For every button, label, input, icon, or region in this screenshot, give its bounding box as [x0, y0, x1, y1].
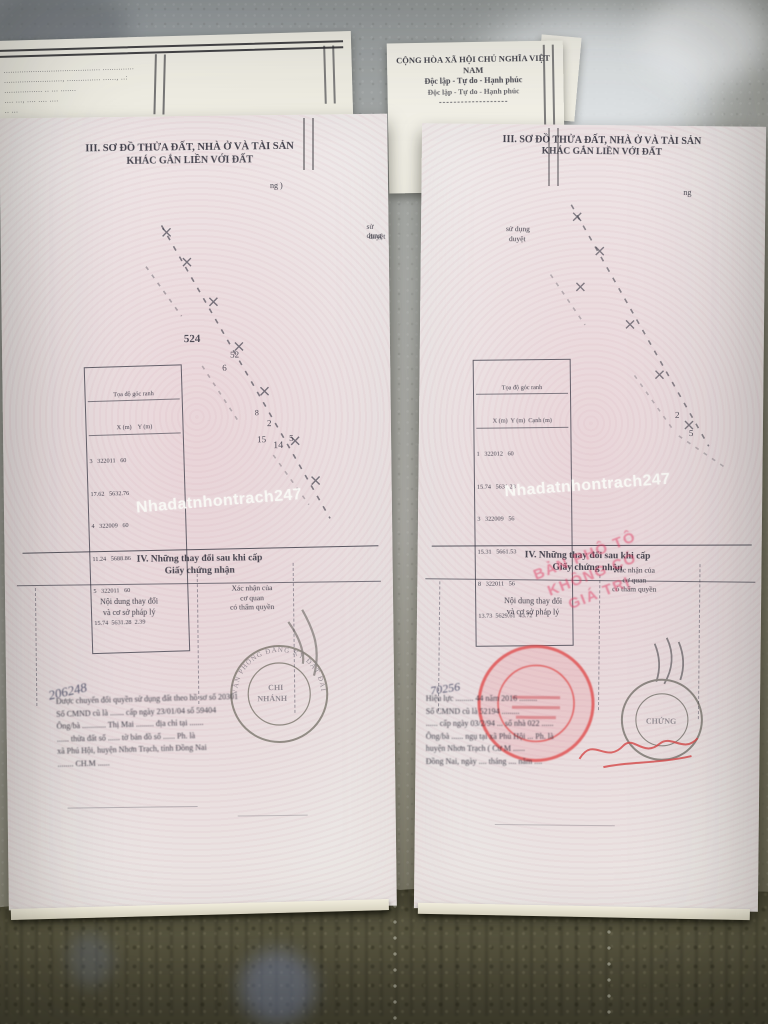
- motto-rule: -------------------: [396, 96, 552, 108]
- top-left-white-sheet: ........................................…: [0, 31, 353, 125]
- short-line: [495, 824, 615, 826]
- under-page-border-bars: [548, 128, 559, 186]
- diagram-label: 5: [689, 428, 694, 438]
- annotation-line: Số CMND cũ là 52194 .........: [426, 705, 726, 718]
- right-certificate-page: III. SƠ ĐỒ THỬA ĐẤT, NHÀ Ở VÀ TÀI SẢN KH…: [414, 123, 766, 912]
- short-line: [68, 806, 198, 809]
- section-divider2: [17, 581, 381, 586]
- column-left-header-l2: và cơ sở pháp lý: [67, 607, 191, 619]
- annotation-line: Hiệu lực ......... 44 năm 2016 .........: [426, 693, 726, 706]
- section3-title-line2: KHÁC GẮN LIỀN VỚI ĐẤT: [30, 153, 350, 168]
- coord-row: 1 322012 60: [477, 449, 569, 461]
- section4-title-line1: IV. Những thay đổi sau khi cấp: [55, 552, 345, 566]
- floor-blue-patch-small: [68, 932, 113, 987]
- diagram-label: 2: [675, 410, 680, 420]
- column-left-header: Nội dung thay đổi và cơ sở pháp lý: [67, 596, 191, 619]
- coord-row: 3 322009 56: [477, 514, 569, 526]
- margin-fragment-duyet: duyệt: [369, 232, 386, 241]
- short-line: [238, 815, 308, 817]
- margin-fragment-sudung: sử dụng: [506, 224, 530, 233]
- coord-table-header2: X (m) Y (m): [88, 421, 180, 436]
- diagram-label: 14: [273, 440, 283, 451]
- national-motto: Độc lập - Tự do - Hạnh phúc: [395, 75, 551, 87]
- column-separator: [197, 574, 200, 704]
- signature-stroke: [654, 638, 683, 684]
- section4-title-line2: Giấy chứng nhận: [55, 564, 345, 578]
- coord-table-header2: X (m) Y (m) Cạnh (m): [476, 416, 568, 429]
- parcel-boundary-dashes: [549, 205, 727, 467]
- diagram-label: 8: [255, 408, 259, 417]
- national-title: CỘNG HÒA XÃ HỘI CHỦ NGHĨA VIỆT NAM: [395, 53, 551, 77]
- diagram-label: 2: [267, 418, 272, 428]
- coord-table-header: Tọa độ góc ranh: [476, 382, 568, 395]
- marble-highlight: [640, 0, 768, 85]
- margin-fragment-duyet: duyệt: [509, 234, 526, 243]
- page-border-lines: [0, 40, 343, 58]
- margin-fragment-ng: ng ): [270, 181, 283, 190]
- page-edge-bars: [323, 45, 336, 103]
- coord-row: 4 322009 60: [91, 520, 183, 534]
- section3-title-line2: KHÁC GẮN LIỀN VỚI ĐẤT: [462, 146, 742, 159]
- diagram-label: 5: [289, 433, 294, 443]
- diagram-label: 52: [230, 349, 239, 359]
- corner-x-marks: [163, 227, 320, 487]
- under-page-border-bars: [303, 118, 314, 170]
- diagram-label: 15: [257, 434, 267, 444]
- left-certificate-page: III. SƠ ĐỒ THỬA ĐẤT, NHÀ Ở VÀ TÀI SẢN KH…: [0, 114, 397, 911]
- column-separator: [35, 588, 37, 706]
- coord-row: 15.74 5631.28 2.39: [94, 617, 186, 631]
- page-edge-bars: [153, 54, 165, 114]
- red-signature: [573, 727, 703, 776]
- coord-row: 3 322011 60: [89, 455, 181, 469]
- column-right-header-l1: Xác nhận của: [223, 583, 281, 593]
- annotation-text-block: Được chuyển đổi quyền sử dụng đất theo h…: [56, 688, 348, 771]
- coord-table-header: Tọa độ góc ranh: [87, 388, 179, 403]
- photo-of-land-certificates: ........................................…: [0, 0, 768, 1024]
- floor-blue-patch: [240, 950, 315, 1024]
- page-edge-bars: [543, 45, 555, 125]
- diagram-label: 6: [222, 363, 227, 373]
- corner-x-marks: [571, 213, 695, 429]
- diagram-label: 524: [184, 333, 201, 345]
